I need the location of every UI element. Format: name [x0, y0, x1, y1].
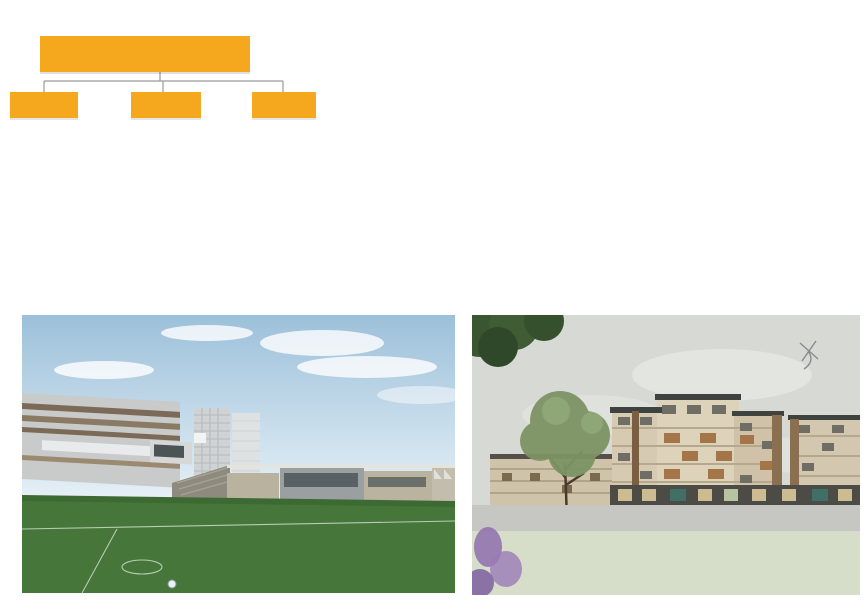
diagram-title-box [40, 36, 250, 72]
city-plan-map-svg [358, 3, 860, 248]
soccer-ball [168, 580, 176, 588]
standards-composition-diagram [0, 0, 350, 250]
soccer-field [22, 495, 455, 593]
branch-innovation [110, 131, 224, 150]
storefront-windows [618, 489, 852, 501]
render-sport-park [22, 315, 455, 593]
landuse-strip-svg [15, 253, 857, 302]
landuse-strip-plan [15, 253, 857, 302]
branch-national-standard [0, 131, 106, 150]
tag-optional [252, 92, 316, 118]
branch-characteristic [238, 131, 342, 150]
sport-park-svg [22, 315, 455, 593]
residential-street-svg [472, 315, 860, 595]
tag-standard [10, 92, 78, 118]
tag-added [131, 92, 201, 118]
render-residential-street [472, 315, 860, 595]
left-building [22, 393, 192, 489]
street-pavement [472, 505, 860, 531]
flower-meadow [472, 531, 860, 595]
city-plan-map [358, 3, 860, 248]
